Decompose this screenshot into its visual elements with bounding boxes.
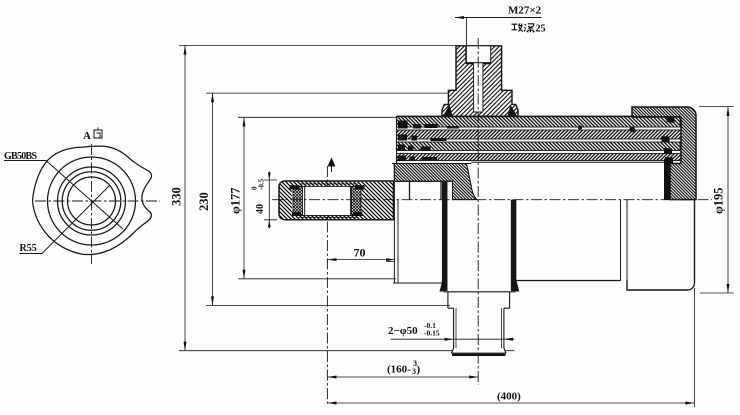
svg-text:-0.15: -0.15 <box>424 329 440 338</box>
svg-text:2−φ50: 2−φ50 <box>388 325 418 337</box>
svg-text:(400): (400) <box>497 391 521 403</box>
svg-text:70: 70 <box>354 246 366 260</box>
svg-text:φ177: φ177 <box>229 187 243 214</box>
svg-text:A: A <box>83 130 91 142</box>
svg-text:(160-: (160- <box>387 364 411 376</box>
svg-text:3: 3 <box>412 367 416 376</box>
svg-text:40: 40 <box>255 204 266 214</box>
svg-text:): ) <box>417 364 421 376</box>
svg-text:M27×2: M27×2 <box>508 5 542 17</box>
svg-text:330: 330 <box>170 187 184 206</box>
svg-text:25: 25 <box>536 24 546 35</box>
svg-text:R55: R55 <box>20 243 37 254</box>
svg-text:-0.5: -0.5 <box>258 178 266 190</box>
svg-text:φ195: φ195 <box>712 187 726 214</box>
svg-text:230: 230 <box>197 192 211 211</box>
